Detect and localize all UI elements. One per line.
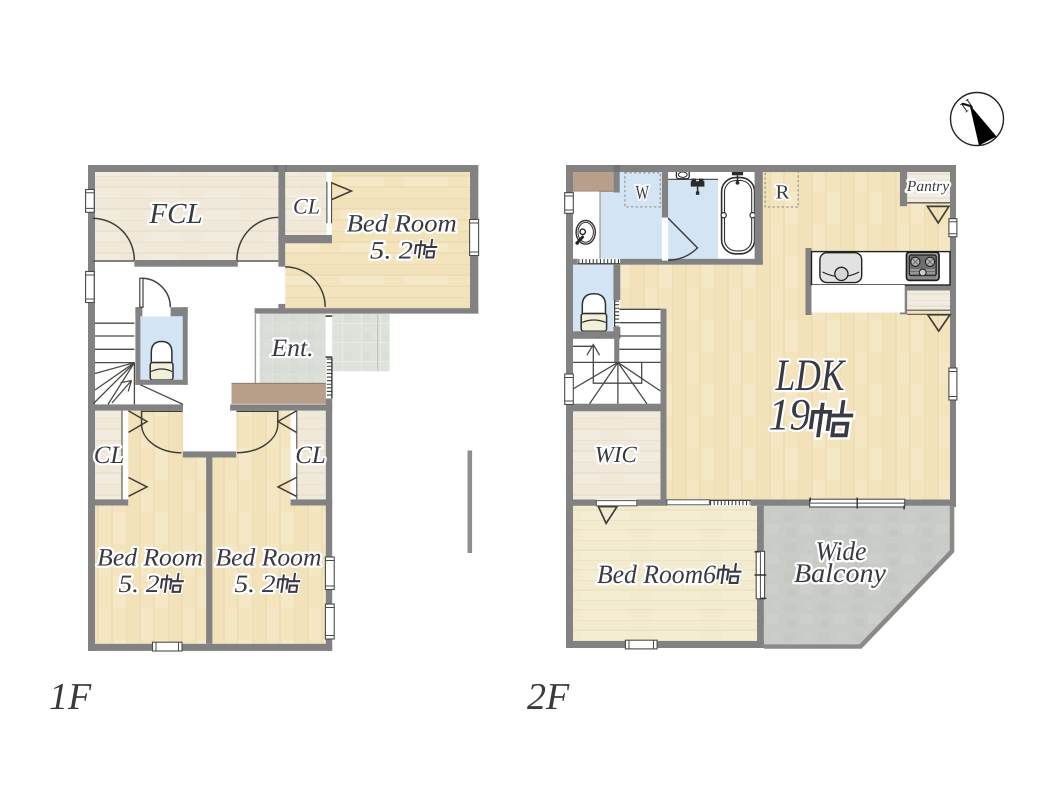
svg-text:WIC: WIC bbox=[595, 442, 638, 467]
svg-text:19: 19 bbox=[769, 390, 811, 440]
svg-text:5. 2: 5. 2 bbox=[119, 571, 160, 598]
svg-text:CL: CL bbox=[293, 194, 320, 219]
svg-text:W: W bbox=[636, 182, 650, 204]
svg-text:Balcony: Balcony bbox=[794, 558, 886, 588]
svg-text:CL: CL bbox=[94, 442, 125, 469]
svg-text:Bed Room6: Bed Room6 bbox=[597, 559, 717, 589]
svg-text:Bed Room: Bed Room bbox=[216, 545, 322, 572]
svg-text:5. 2: 5. 2 bbox=[370, 238, 413, 265]
svg-text:1F: 1F bbox=[49, 676, 92, 718]
svg-text:Pantry: Pantry bbox=[906, 178, 949, 195]
svg-text:CL: CL bbox=[295, 442, 326, 469]
svg-text:Ent.: Ent. bbox=[270, 335, 313, 362]
svg-text:2F: 2F bbox=[527, 676, 570, 718]
svg-text:Bed Room: Bed Room bbox=[97, 545, 203, 572]
svg-text:Bed Room: Bed Room bbox=[347, 211, 457, 238]
svg-text:5. 2: 5. 2 bbox=[235, 571, 276, 598]
svg-text:R: R bbox=[776, 182, 791, 204]
svg-text:FCL: FCL bbox=[148, 198, 202, 230]
